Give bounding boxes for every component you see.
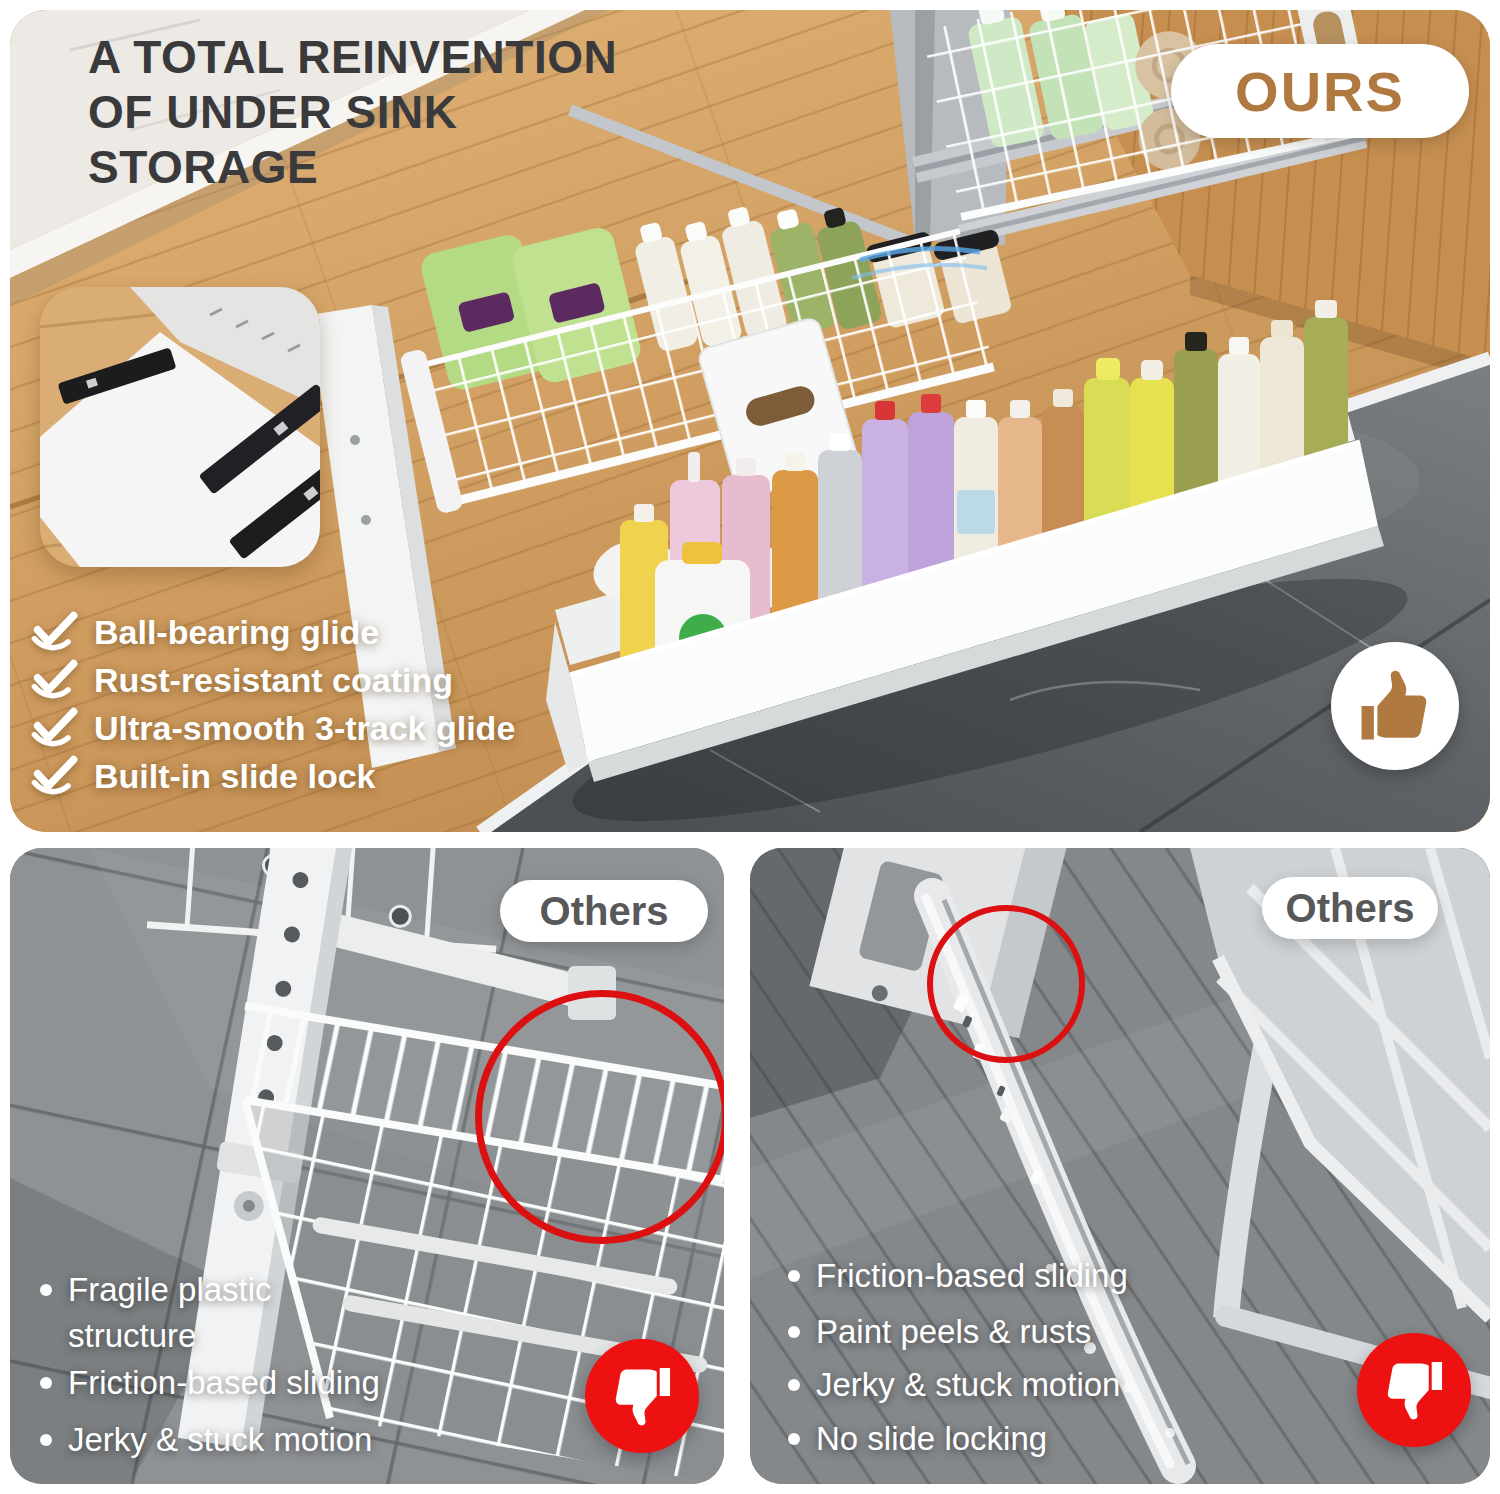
rail-inset-image: [40, 287, 320, 567]
drawback-item: Jerky & stuck motion: [788, 1362, 1120, 1408]
others-badge: Others: [500, 880, 708, 942]
feature-item: Ultra-smooth 3-track glide: [30, 706, 515, 750]
competitor-panel-right: Others Friction-based sliding Paint peel…: [750, 848, 1490, 1484]
headline-line-1: A TOTAL REINVENTION: [88, 30, 617, 85]
feature-item: Rust-resistant coating: [30, 658, 453, 702]
drawback-item: Friction-based sliding: [788, 1253, 1128, 1299]
headline-line-2: OF UNDER SINK: [88, 85, 617, 140]
drawback-label: Fragile plastic structure: [68, 1267, 348, 1359]
ours-badge: OURS: [1171, 44, 1469, 138]
drawback-item: Jerky & stuck motion: [40, 1417, 372, 1463]
drawback-label: Jerky & stuck motion: [68, 1417, 372, 1463]
drawback-item: Fragile plastic structure: [40, 1267, 348, 1359]
check-icon: [30, 706, 78, 750]
check-icon: [30, 610, 78, 654]
ours-badge-label: OURS: [1235, 59, 1405, 124]
bullet-dot: [40, 1284, 52, 1296]
drawback-label: Jerky & stuck motion: [816, 1362, 1120, 1408]
bullet-dot: [788, 1326, 800, 1338]
check-icon: [30, 754, 78, 798]
red-circle-annotation: [927, 905, 1085, 1063]
others-badge-label: Others: [1286, 886, 1415, 931]
feature-label: Rust-resistant coating: [94, 661, 453, 700]
red-circle-annotation: [475, 990, 724, 1244]
others-badge-label: Others: [540, 889, 669, 934]
bullet-dot: [788, 1433, 800, 1445]
feature-label: Ultra-smooth 3-track glide: [94, 709, 515, 748]
others-badge: Others: [1262, 877, 1438, 939]
drawback-item: No slide locking: [788, 1416, 1047, 1462]
thumbs-up-icon: [1331, 642, 1459, 770]
headline: A TOTAL REINVENTION OF UNDER SINK STORAG…: [88, 30, 617, 195]
feature-label: Ball-bearing glide: [94, 613, 379, 652]
drawback-item: Paint peels & rusts: [788, 1309, 1091, 1355]
feature-label: Built-in slide lock: [94, 757, 375, 796]
ball-bearing-rail-illustration: [40, 287, 320, 567]
competitor-panel-left: Others Fragile plastic structure Frictio…: [10, 848, 724, 1484]
bullet-dot: [788, 1379, 800, 1391]
thumbs-down-icon: [585, 1339, 699, 1453]
bullet-dot: [788, 1270, 800, 1282]
drawback-label: No slide locking: [816, 1416, 1047, 1462]
drawback-label: Paint peels & rusts: [816, 1309, 1091, 1355]
product-infographic: A TOTAL REINVENTION OF UNDER SINK STORAG…: [0, 0, 1500, 1494]
drawback-item: Friction-based sliding: [40, 1360, 380, 1406]
drawback-label: Friction-based sliding: [816, 1253, 1128, 1299]
bullet-dot: [40, 1434, 52, 1446]
bullet-dot: [40, 1377, 52, 1389]
thumbs-down-icon: [1357, 1333, 1471, 1447]
feature-item: Ball-bearing glide: [30, 610, 379, 654]
headline-line-3: STORAGE: [88, 140, 617, 195]
feature-item: Built-in slide lock: [30, 754, 375, 798]
check-icon: [30, 658, 78, 702]
hero-photo-panel: A TOTAL REINVENTION OF UNDER SINK STORAG…: [10, 10, 1490, 832]
drawback-label: Friction-based sliding: [68, 1360, 380, 1406]
